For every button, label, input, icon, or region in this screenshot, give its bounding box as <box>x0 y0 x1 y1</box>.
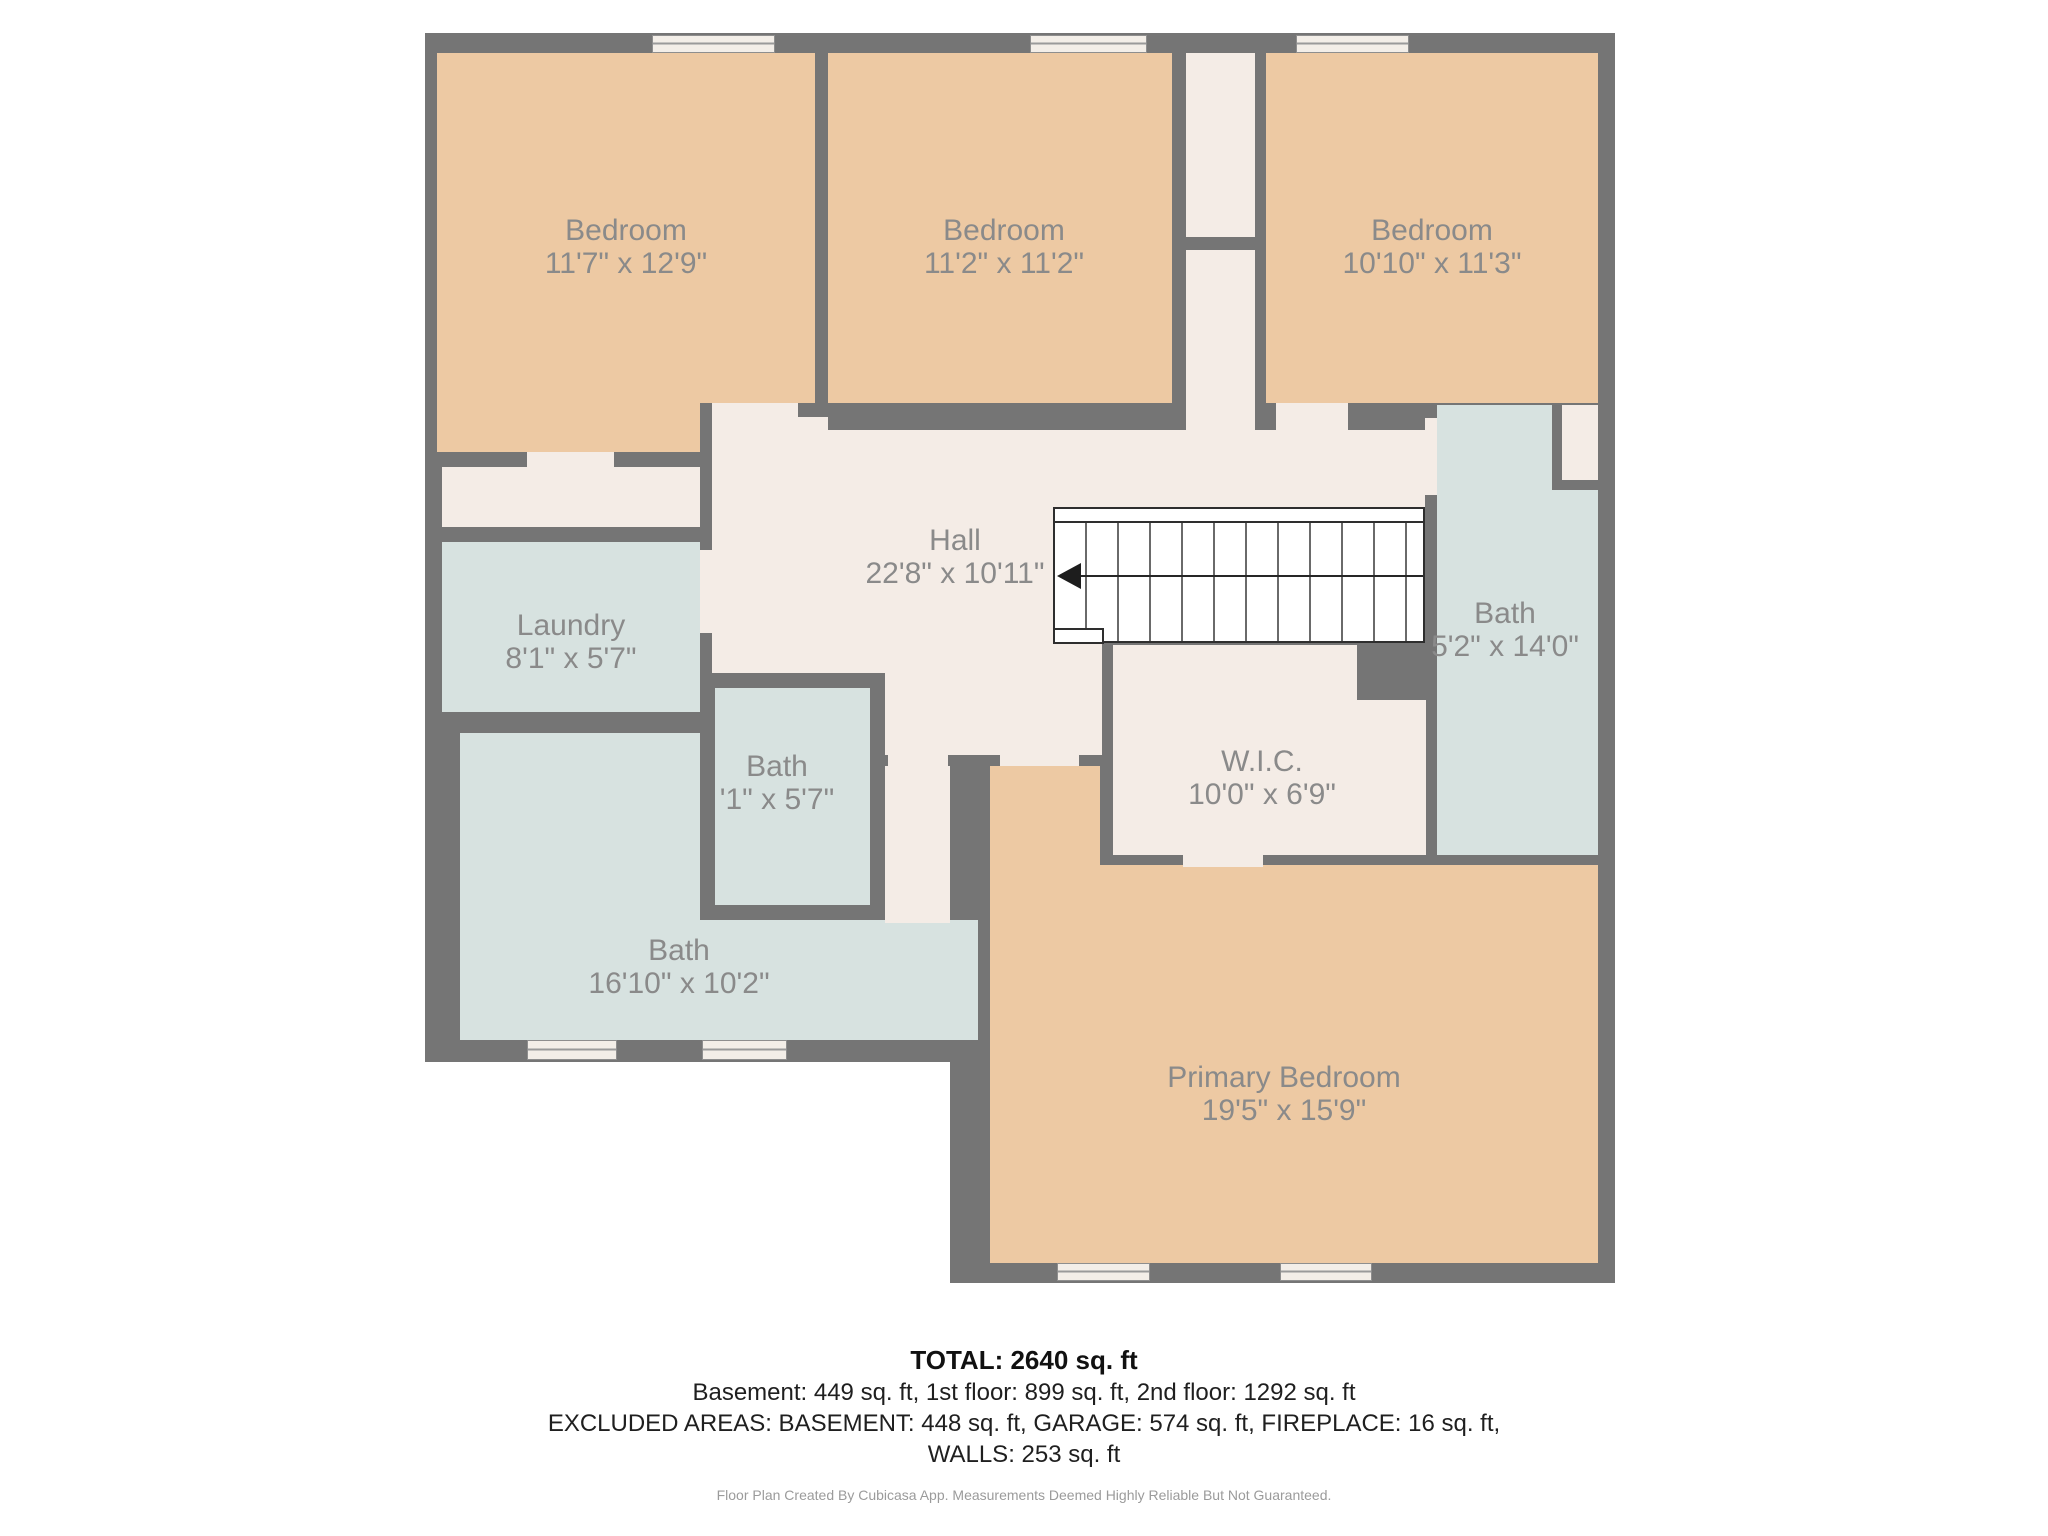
room-name: Primary Bedroom <box>1167 1061 1400 1094</box>
room-bedroom-1-lower <box>437 403 700 452</box>
summary-excluded: EXCLUDED AREAS: BASEMENT: 448 sq. ft, GA… <box>0 1410 2048 1438</box>
room-dims: 10'0" x 6'9" <box>1188 778 1336 811</box>
stairs-bottom-landing <box>1053 628 1104 644</box>
window-bath-main-left <box>527 1040 617 1060</box>
door-laundry-hall <box>700 550 714 633</box>
room-name: Laundry <box>505 609 636 642</box>
summary-total: TOTAL: 2640 sq. ft <box>0 1345 2048 1376</box>
room-primary-entry-arm <box>990 766 1100 865</box>
door-wic <box>1183 855 1263 867</box>
room-name: Bath <box>1431 597 1579 630</box>
room-dims: '1" x 5'7" <box>720 783 834 816</box>
room-label-wic: W.I.C. 10'0" x 6'9" <box>1188 745 1336 811</box>
room-label-bedroom-1: Bedroom 11'7" x 12'9" <box>545 214 707 280</box>
door-bedroom-1-entry <box>712 403 798 417</box>
room-nook-below-bedroom-1 <box>442 467 700 527</box>
stairs-midline <box>1069 575 1423 577</box>
stairs-treads <box>1055 523 1423 641</box>
room-name: Bedroom <box>1343 214 1522 247</box>
room-dims: 19'5" x 15'9" <box>1167 1094 1400 1127</box>
room-name: Bedroom <box>924 214 1084 247</box>
room-dims: 10'10" x 11'3" <box>1343 247 1522 280</box>
room-closet-upper <box>1186 53 1255 237</box>
room-label-bath-right: Bath 5'2" x 14'0" <box>1431 597 1579 663</box>
stairs <box>1053 507 1425 643</box>
room-name: W.I.C. <box>1188 745 1336 778</box>
summary-walls: WALLS: 253 sq. ft <box>0 1441 2048 1469</box>
room-name: Bath <box>720 750 834 783</box>
room-closet-bath-right <box>1552 405 1598 490</box>
window-bedroom-1 <box>652 35 775 53</box>
summary-footer: Floor Plan Created By Cubicasa App. Meas… <box>0 1487 2048 1503</box>
floor-plan: Bedroom 11'7" x 12'9" Bedroom 11'2" x 11… <box>425 33 1615 1283</box>
window-bedroom-2 <box>1030 35 1147 53</box>
stairs-direction-arrow-icon <box>1057 563 1081 589</box>
room-dims: 22'8" x 10'11" <box>866 557 1045 590</box>
stairs-top-landing <box>1055 509 1423 523</box>
room-dims: 5'2" x 14'0" <box>1431 630 1579 663</box>
room-label-laundry: Laundry 8'1" x 5'7" <box>505 609 636 675</box>
room-name: Hall <box>866 524 1045 557</box>
room-dims: 8'1" x 5'7" <box>505 642 636 675</box>
window-bath-main-right <box>702 1040 787 1060</box>
door-bedroom-1-nook <box>527 452 614 467</box>
room-closet-lower <box>1186 250 1255 430</box>
window-bedroom-3 <box>1296 35 1409 53</box>
room-label-bedroom-2: Bedroom 11'2" x 11'2" <box>924 214 1084 280</box>
room-corridor-primary <box>885 766 950 923</box>
room-name: Bath <box>588 934 769 967</box>
room-dims: 16'10" x 10'2" <box>588 967 769 1000</box>
room-dims: 11'2" x 11'2" <box>924 247 1084 280</box>
door-corridor <box>888 755 948 766</box>
room-label-bedroom-3: Bedroom 10'10" x 11'3" <box>1343 214 1522 280</box>
door-bath-right <box>1425 418 1437 495</box>
room-label-hall: Hall 22'8" x 10'11" <box>866 524 1045 590</box>
door-primary-entry <box>1000 755 1079 766</box>
window-primary-left <box>1057 1263 1150 1281</box>
room-label-bath-small: Bath '1" x 5'7" <box>720 750 834 816</box>
floor-plan-page: Bedroom 11'7" x 12'9" Bedroom 11'2" x 11… <box>0 0 2048 1536</box>
room-name: Bedroom <box>545 214 707 247</box>
room-label-primary-bedroom: Primary Bedroom 19'5" x 15'9" <box>1167 1061 1400 1127</box>
summary-floors: Basement: 449 sq. ft, 1st floor: 899 sq.… <box>0 1379 2048 1407</box>
room-label-bath-main: Bath 16'10" x 10'2" <box>588 934 769 1000</box>
room-dims: 11'7" x 12'9" <box>545 247 707 280</box>
wall-notch-wic <box>1357 645 1426 700</box>
window-primary-right <box>1280 1263 1372 1281</box>
door-bedroom-3-entry <box>1276 403 1348 430</box>
